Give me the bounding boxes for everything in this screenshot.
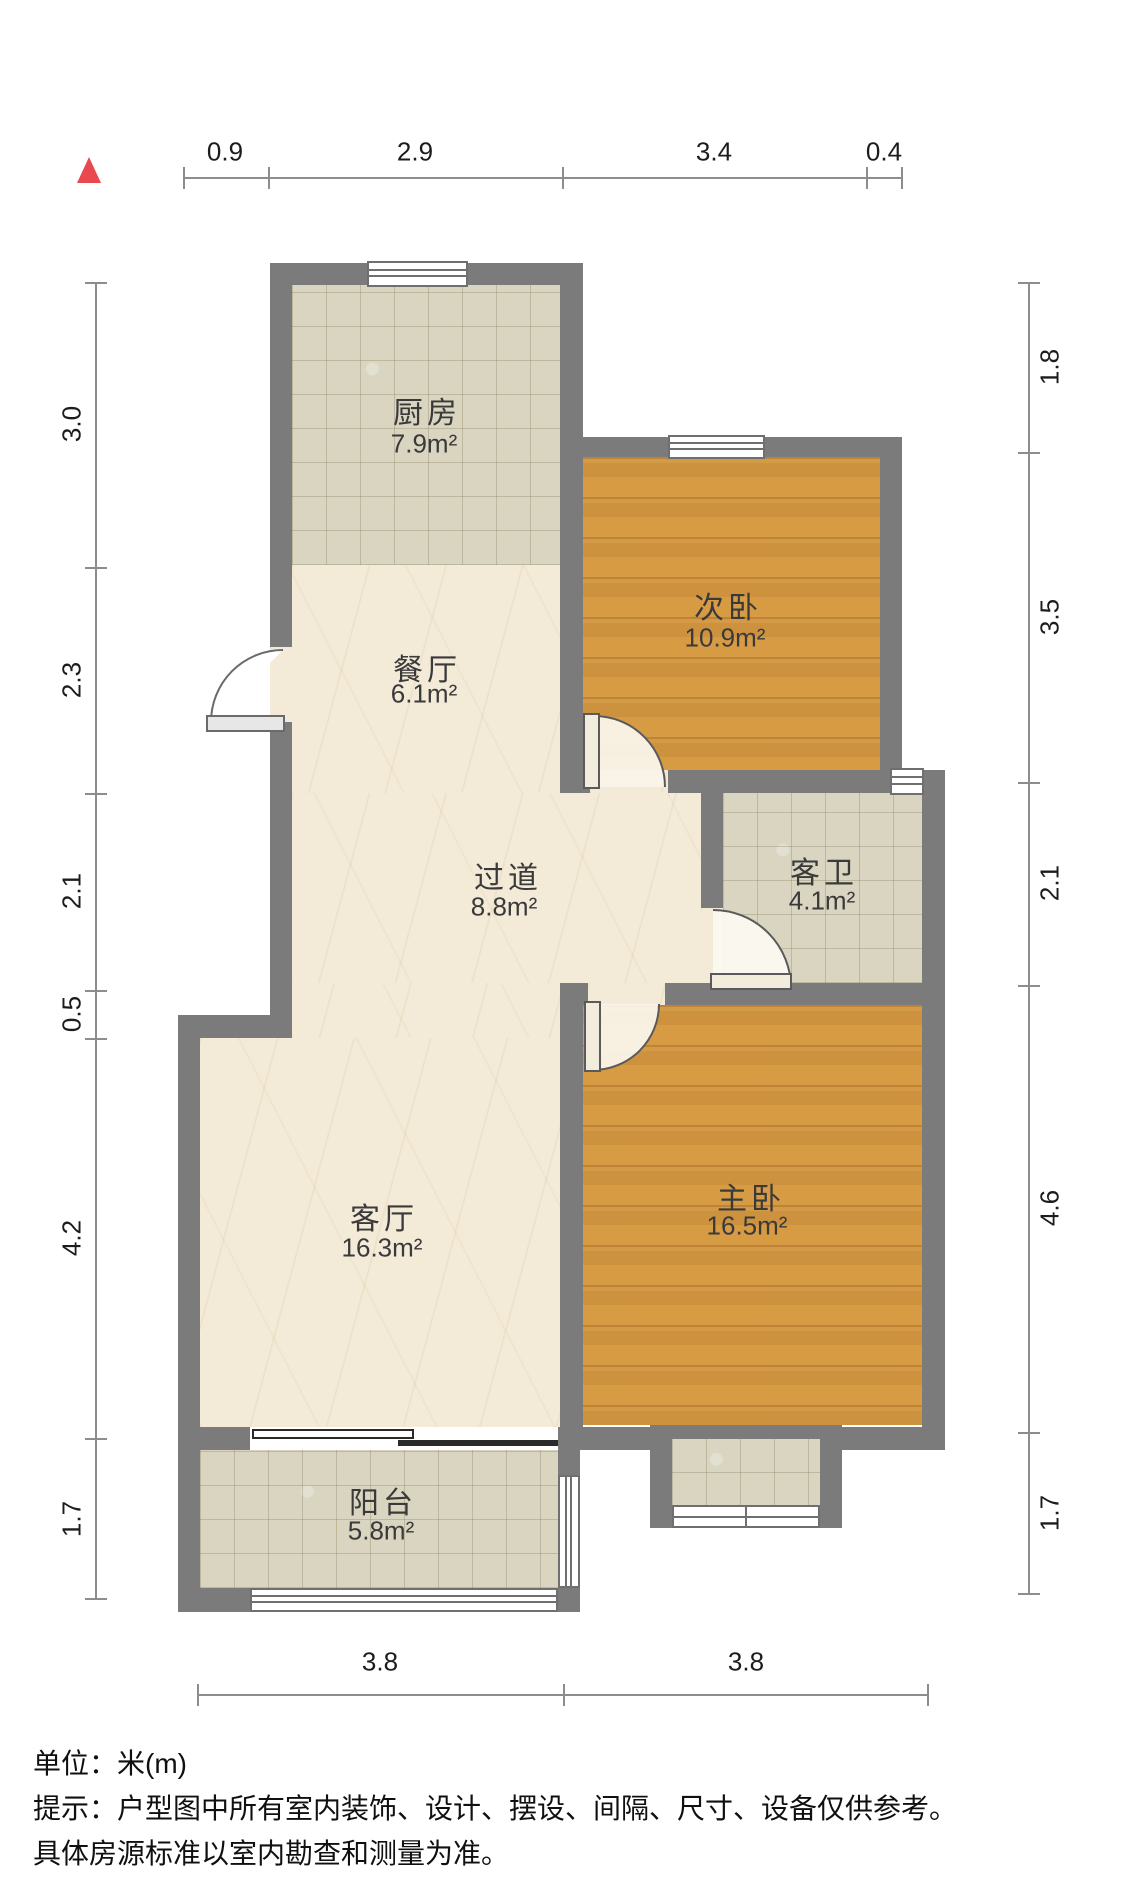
dim-left-0: 3.0	[57, 406, 88, 442]
wall	[560, 770, 590, 793]
room-area-living: 16.3m²	[342, 1233, 423, 1264]
wall	[270, 263, 292, 647]
wall	[178, 1427, 250, 1450]
dim-tick	[85, 282, 107, 284]
dim-left-4: 4.2	[57, 1220, 88, 1256]
sliding-door-panel	[252, 1429, 414, 1439]
room-label-hallway: 过道	[474, 853, 542, 897]
dim-left-1: 2.3	[57, 662, 88, 698]
dim-right-1: 3.5	[1035, 599, 1066, 635]
dim-tick	[562, 167, 564, 189]
dim-tick	[85, 567, 107, 569]
floor-entry-opening	[270, 647, 292, 722]
wall	[560, 437, 583, 793]
kitchen-window	[367, 261, 468, 287]
wall	[880, 457, 902, 770]
dim-tick	[183, 167, 185, 189]
dim-tick	[1018, 452, 1040, 454]
wall	[560, 983, 583, 1450]
room-area-master: 16.5m²	[707, 1211, 788, 1242]
floor-bedroom2-opening	[590, 770, 668, 793]
dimension-line-left	[95, 282, 97, 1600]
wall	[650, 1425, 842, 1439]
dim-tick	[901, 167, 903, 189]
dim-left-3: 0.5	[57, 996, 88, 1032]
wall	[560, 285, 583, 437]
balcony-bottom-window	[250, 1588, 558, 1612]
dim-top-1: 2.9	[397, 137, 433, 168]
floor-plan-canvas: 厨房 7.9m² 餐厅 6.1m² 次卧 10.9m² 过道 8.8m² 客卫 …	[0, 0, 1125, 1877]
dim-tick	[1018, 985, 1040, 987]
room-area-bathroom: 4.1m²	[789, 886, 855, 917]
room-area-dining: 6.1m²	[391, 679, 457, 710]
room-label-bedroom2: 次卧	[694, 583, 762, 627]
dim-tick	[927, 1684, 929, 1706]
room-area-hallway: 8.8m²	[471, 892, 537, 923]
room-area-balcony: 5.8m²	[348, 1516, 414, 1547]
dim-tick	[85, 1438, 107, 1440]
wall	[701, 770, 723, 908]
room-area-kitchen: 7.9m²	[391, 429, 457, 460]
dim-tick	[1018, 1432, 1040, 1434]
dim-right-3: 4.6	[1035, 1190, 1066, 1226]
dim-top-0: 0.9	[207, 137, 243, 168]
dim-tick	[85, 1038, 107, 1040]
north-triangle-icon	[77, 157, 101, 183]
dim-tick	[1018, 1593, 1040, 1595]
wall	[178, 1015, 200, 1612]
wall	[270, 722, 292, 1038]
wall	[665, 983, 945, 1005]
dim-tick	[1018, 282, 1040, 284]
balcony-side-window	[558, 1475, 580, 1588]
sliding-door-panel	[398, 1440, 558, 1446]
wall	[922, 770, 945, 1450]
bay-window	[672, 1505, 820, 1528]
dim-tick	[268, 167, 270, 189]
footer-disclaimer-2: 具体房源标准以室内勘查和测量为准。	[33, 1832, 509, 1872]
bedroom2-window	[668, 435, 765, 459]
bathroom-window	[890, 768, 924, 795]
wall	[650, 1439, 672, 1528]
dim-left-5: 1.7	[57, 1501, 88, 1537]
dim-tick	[563, 1684, 565, 1706]
dim-left-2: 2.1	[57, 873, 88, 909]
wall	[820, 1439, 842, 1528]
dim-tick	[197, 1684, 199, 1706]
room-label-kitchen: 厨房	[393, 388, 461, 432]
dim-tick	[866, 167, 868, 189]
dim-right-0: 1.8	[1035, 349, 1066, 385]
dim-tick	[85, 990, 107, 992]
dim-right-4: 1.7	[1035, 1495, 1066, 1531]
dim-tick	[1018, 782, 1040, 784]
floor-bay-alcove	[672, 1439, 820, 1507]
floor-bathroom-opening	[701, 908, 723, 988]
room-area-bedroom2: 10.9m²	[685, 623, 766, 654]
floor-master-opening	[588, 983, 665, 1005]
room-label-living: 客厅	[350, 1194, 418, 1238]
dimension-line-right	[1028, 282, 1030, 1595]
footer-disclaimer-1: 提示：户型图中所有室内装饰、设计、摆设、间隔、尺寸、设备仅供参考。	[33, 1787, 957, 1827]
dimension-line-top	[183, 177, 903, 179]
wall	[842, 1427, 945, 1450]
dim-right-2: 2.1	[1035, 865, 1066, 901]
dim-bottom-0: 3.8	[362, 1647, 398, 1678]
dim-top-2: 3.4	[696, 137, 732, 168]
dim-tick	[85, 1598, 107, 1600]
dim-tick	[85, 793, 107, 795]
dim-bottom-1: 3.8	[728, 1647, 764, 1678]
dim-top-3: 0.4	[866, 137, 902, 168]
footer-unit-note: 单位：米(m)	[33, 1742, 187, 1782]
